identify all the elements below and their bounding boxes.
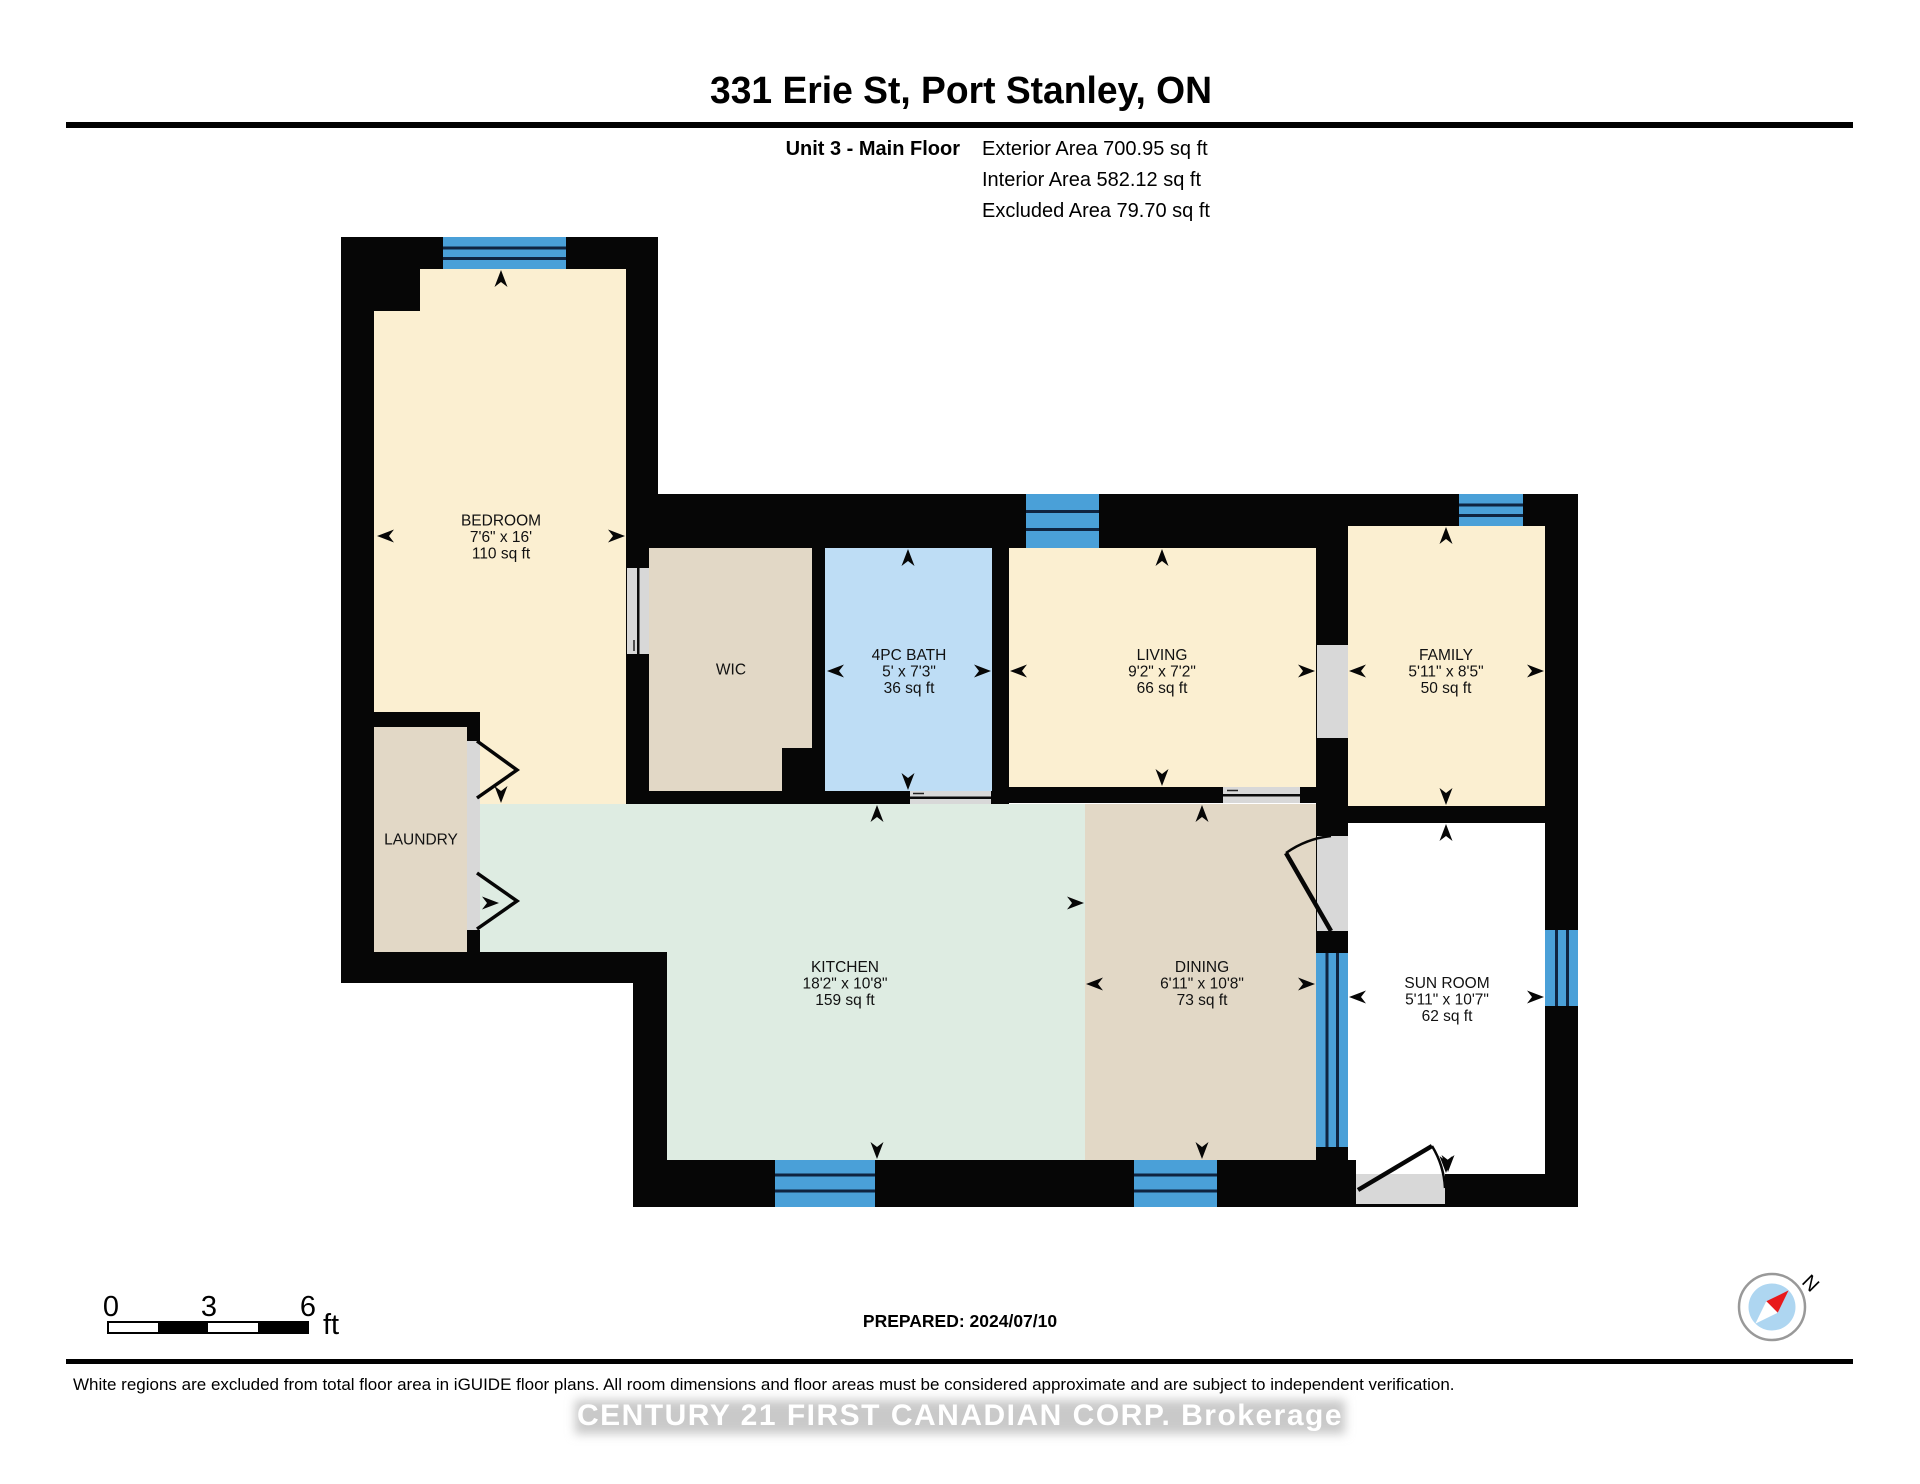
svg-text:CENTURY 21 FIRST CANADIAN CORP: CENTURY 21 FIRST CANADIAN CORP. Brokerag… bbox=[577, 1399, 1343, 1432]
svg-text:ft: ft bbox=[323, 1309, 339, 1341]
svg-text:36 sq ft: 36 sq ft bbox=[884, 680, 936, 697]
svg-text:5'11" x 8'5": 5'11" x 8'5" bbox=[1408, 663, 1483, 680]
svg-text:DINING: DINING bbox=[1175, 959, 1229, 976]
svg-text:White regions are excluded fro: White regions are excluded from total fl… bbox=[73, 1375, 1455, 1394]
svg-text:6'11" x 10'8": 6'11" x 10'8" bbox=[1160, 975, 1244, 992]
svg-text:5'11" x 10'7": 5'11" x 10'7" bbox=[1405, 991, 1489, 1008]
svg-text:PREPARED: 2024/07/10: PREPARED: 2024/07/10 bbox=[863, 1311, 1057, 1331]
svg-text:5' x 7'3": 5' x 7'3" bbox=[882, 663, 936, 680]
svg-text:73 sq ft: 73 sq ft bbox=[1177, 992, 1229, 1009]
svg-text:BEDROOM: BEDROOM bbox=[461, 512, 541, 529]
svg-text:3: 3 bbox=[201, 1291, 217, 1323]
svg-text:62 sq ft: 62 sq ft bbox=[1422, 1008, 1474, 1025]
svg-text:7'6" x 16': 7'6" x 16' bbox=[470, 529, 532, 546]
svg-text:4PC BATH: 4PC BATH bbox=[872, 647, 947, 664]
svg-text:9'2" x 7'2": 9'2" x 7'2" bbox=[1128, 663, 1196, 680]
svg-text:18'2" x 10'8": 18'2" x 10'8" bbox=[802, 975, 887, 992]
svg-text:Exterior Area 700.95 sq ft: Exterior Area 700.95 sq ft bbox=[982, 138, 1208, 160]
svg-text:6: 6 bbox=[300, 1291, 316, 1323]
svg-text:LIVING: LIVING bbox=[1137, 647, 1188, 664]
svg-text:159 sq ft: 159 sq ft bbox=[815, 992, 875, 1009]
svg-text:Unit 3 - Main Floor: Unit 3 - Main Floor bbox=[786, 138, 961, 160]
svg-text:50 sq ft: 50 sq ft bbox=[1421, 680, 1473, 697]
svg-text:66 sq ft: 66 sq ft bbox=[1137, 680, 1189, 697]
svg-text:SUN ROOM: SUN ROOM bbox=[1404, 975, 1489, 992]
svg-text:331 Erie St, Port Stanley, ON: 331 Erie St, Port Stanley, ON bbox=[710, 70, 1212, 112]
svg-text:110 sq ft: 110 sq ft bbox=[472, 546, 531, 563]
svg-text:Interior Area 582.12 sq ft: Interior Area 582.12 sq ft bbox=[982, 169, 1201, 191]
svg-text:FAMILY: FAMILY bbox=[1419, 647, 1473, 664]
svg-text:Excluded Area 79.70 sq ft: Excluded Area 79.70 sq ft bbox=[982, 200, 1210, 222]
svg-text:0: 0 bbox=[103, 1291, 119, 1323]
svg-text:LAUNDRY: LAUNDRY bbox=[384, 831, 458, 848]
svg-text:KITCHEN: KITCHEN bbox=[811, 959, 879, 976]
svg-text:WIC: WIC bbox=[716, 661, 746, 678]
